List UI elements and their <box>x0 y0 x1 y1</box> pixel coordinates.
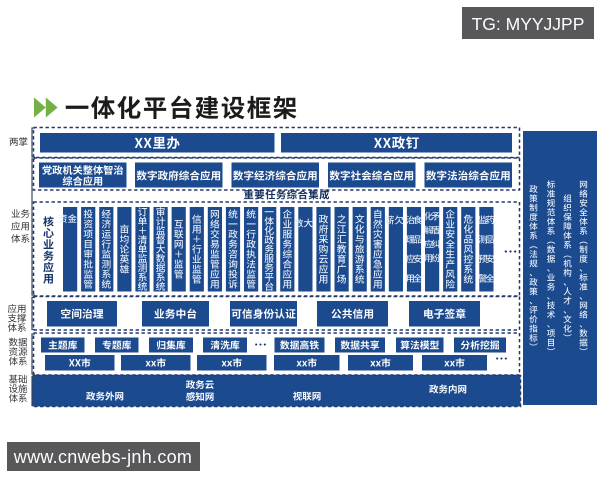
svg-text:www.cnwebs-jnh.com: www.cnwebs-jnh.com <box>13 447 192 467</box>
svg-text:TG: MYYJJPP: TG: MYYJJPP <box>472 14 585 34</box>
